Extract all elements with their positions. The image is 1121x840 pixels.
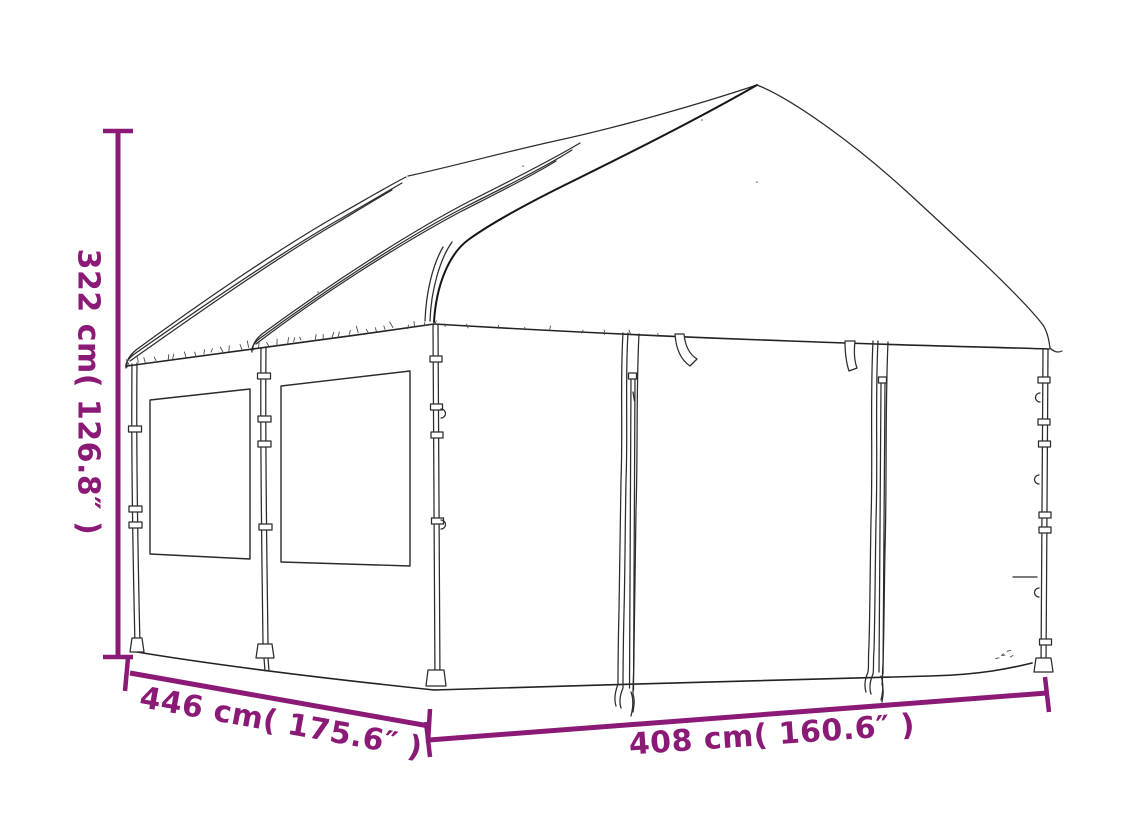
door-tie-strap-2 — [845, 341, 857, 371]
depth-dimension-label: 446 cm( 175.6″ ) — [137, 680, 425, 766]
roof-ridge-cap-far — [126, 177, 406, 368]
guy-clip — [1035, 588, 1040, 597]
front-right-pole — [1013, 350, 1053, 672]
dimension-diagram: 322 cm( 126.8″ ) 446 cm( 175.6″ ) 408 cm… — [0, 0, 1121, 840]
roof-ridge-line — [408, 85, 757, 176]
pole-foot — [256, 644, 274, 658]
guy-clip — [1036, 393, 1041, 402]
side-pole-2 — [256, 347, 274, 671]
side-pole-1 — [129, 363, 145, 652]
dimension-depth: 446 cm( 175.6″ ) — [125, 658, 430, 766]
door-tie-strap-1 — [675, 334, 697, 366]
corner-pole — [426, 324, 446, 686]
left-wall-bottom-edge — [131, 651, 434, 690]
gable-right-edge — [757, 85, 1050, 348]
pole-foot — [426, 670, 446, 686]
gazebo-line-drawing: 322 cm( 126.8″ ) 446 cm( 175.6″ ) 408 cm… — [0, 0, 1121, 840]
side-window-1 — [150, 389, 250, 559]
guy-clip — [1035, 475, 1040, 484]
pole-foot — [130, 638, 144, 652]
front-bottom-edge — [434, 663, 1032, 690]
front-wall — [434, 333, 1053, 716]
left-wall — [129, 324, 447, 690]
gable-front-edge — [434, 85, 757, 322]
height-dimension-label: 322 cm( 126.8″ ) — [71, 249, 106, 536]
door-zipper-2 — [865, 341, 888, 702]
side-window-2 — [281, 371, 410, 566]
door-zipper-1 — [615, 333, 639, 716]
roof — [126, 85, 1062, 368]
front-eave — [434, 324, 1049, 349]
dimension-height: 322 cm( 126.8″ ) — [71, 131, 134, 657]
dimension-width: 408 cm( 160.6″ ) — [426, 677, 1049, 762]
pole-foot — [1034, 658, 1053, 672]
